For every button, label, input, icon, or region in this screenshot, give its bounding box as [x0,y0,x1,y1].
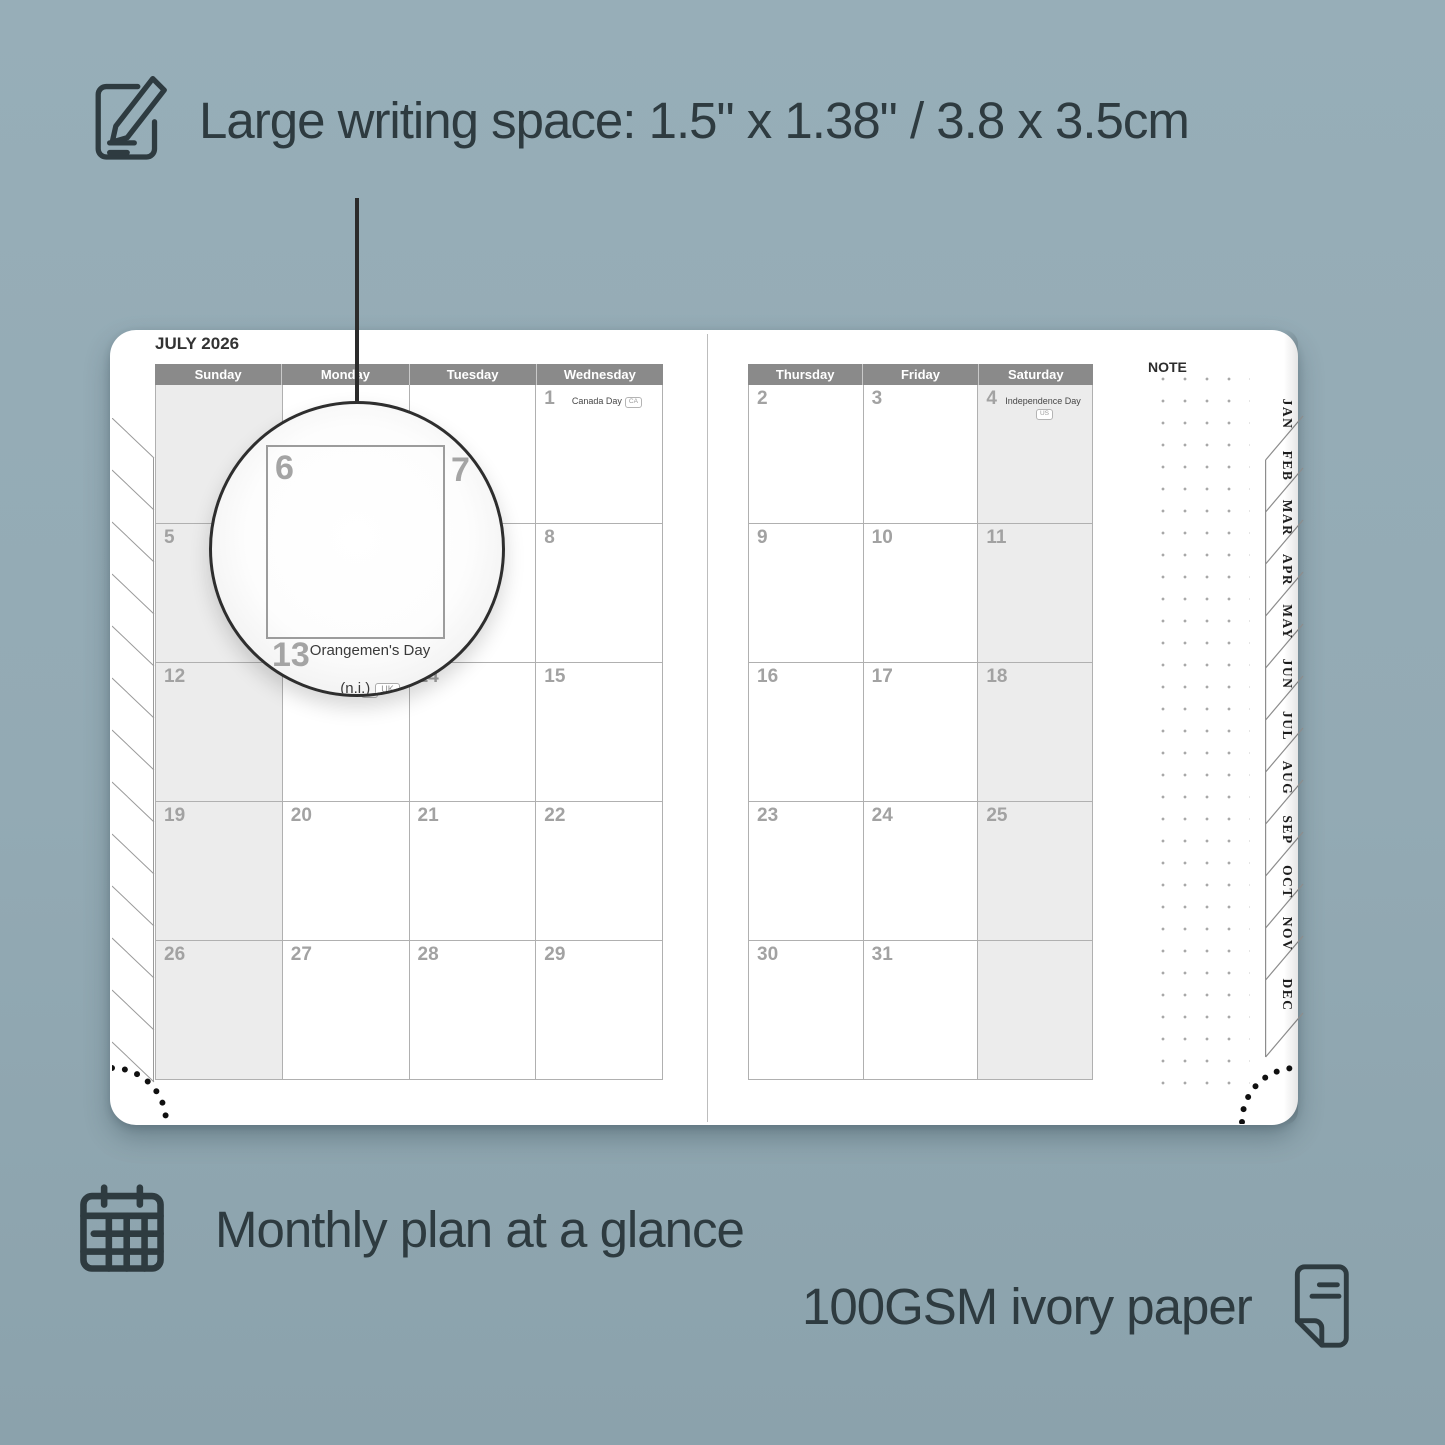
day-number: 18 [986,667,1007,688]
pencil-note-icon [85,72,173,168]
month-tab: DEC [1280,978,1295,1011]
calendar-cell: 2 [749,385,864,523]
day-header: Sunday [155,364,281,385]
week-row: 3031 [749,941,1092,1079]
calendar-cell: 21 [410,802,537,940]
week-row: 232425 [749,802,1092,941]
calendar-cell: 16 [749,663,864,801]
month-tab: JAN [1280,399,1295,430]
calendar-cell: 30 [749,941,864,1079]
calendar-cell: 31 [864,941,979,1079]
calendar-cell: 29 [536,941,662,1079]
day-number: 9 [757,528,768,549]
grid-body: 234Independence DayUS9101116171823242530… [748,385,1093,1080]
calendar-cell: 1Canada DayCA [536,385,662,523]
month-tab: SEP [1280,815,1295,844]
holiday-label: Canada DayCA [555,395,662,408]
month-tab: FEB [1280,451,1295,482]
paper-sheet-icon [1290,1262,1352,1350]
magnified-country-badge: UK [375,683,400,695]
calendar-cell: 20 [283,802,410,940]
note-dot-grid [1146,362,1250,1100]
day-number: 19 [164,806,185,827]
day-header: Wednesday [536,364,663,385]
month-tab-strip: JANFEBMARAPRMAYJUNJULAUGSEPOCTNOVDEC [1265,385,1305,1085]
calendar-cell: 10 [864,524,979,662]
magnified-day-6: 6 [275,451,294,485]
day-number: 2 [757,389,768,410]
day-number: 5 [164,528,175,549]
day-number: 25 [986,806,1007,827]
day-number: 1 [544,389,555,410]
day-number: 4 [986,389,997,410]
day-number: 3 [872,389,883,410]
month-tab: JUL [1280,711,1295,741]
product-image: Large writing space: 1.5" x 1.38" / 3.8 … [0,0,1445,1445]
calendar-cell: 27 [283,941,410,1079]
feature-monthly-plan-text: Monthly plan at a glance [215,1200,744,1259]
calendar-cell: 23 [749,802,864,940]
magnified-holiday-line2-text: (n.i.) [340,680,370,697]
calendar-cell: 3 [864,385,979,523]
page-gutter-line [707,334,708,1122]
month-tab: MAY [1280,604,1295,640]
day-header: Tuesday [409,364,536,385]
calendar-cell: 9 [749,524,864,662]
stitch-arc-right [1230,1058,1296,1124]
week-row: 234Independence DayUS [749,385,1092,524]
day-header-row: ThursdayFridaySaturday [748,364,1093,385]
day-number: 16 [757,667,778,688]
calendar-cell: 22 [536,802,662,940]
magnified-day-7: 7 [451,453,470,487]
day-number: 30 [757,945,778,966]
calendar-grid-right: ThursdayFridaySaturday234Independence Da… [748,364,1093,1080]
day-number: 8 [544,528,555,549]
month-title: JULY 2026 [155,334,239,354]
calendar-cell: 8 [536,524,662,662]
day-number: 24 [872,806,893,827]
month-tab: OCT [1280,865,1295,899]
calendar-cell: 12 [156,663,283,801]
week-row: 161718 [749,663,1092,802]
day-number: 10 [872,528,893,549]
feature-paper: 100GSM ivory paper [802,1262,1352,1350]
calendar-cell: 15 [536,663,662,801]
calendar-cell: 4Independence DayUS [978,385,1092,523]
magnifier-pointer-line [355,198,359,404]
feature-paper-text: 100GSM ivory paper [802,1277,1252,1336]
calendar-grid-icon [75,1182,169,1276]
day-header: Thursday [748,364,862,385]
country-badge: US [1036,409,1053,420]
day-number: 21 [418,806,439,827]
day-number: 27 [291,945,312,966]
month-tab: NOV [1280,917,1295,952]
week-row: 19202122 [156,802,662,941]
month-tab: MAR [1280,500,1295,537]
calendar-cell: 18 [978,663,1092,801]
calendar-cell [978,941,1092,1079]
day-number: 22 [544,806,565,827]
magnifier-circle: 6 7 13 Orangemen's Day (n.i.)UK [209,401,505,697]
day-number: 28 [418,945,439,966]
day-header: Saturday [978,364,1093,385]
calendar-cell: 17 [864,663,979,801]
calendar-cell: 24 [864,802,979,940]
day-header: Monday [281,364,408,385]
left-tab-stubs [112,418,155,1108]
country-badge: CA [625,397,642,408]
month-tab: APR [1280,554,1295,586]
day-number: 23 [757,806,778,827]
stitch-arc-left [112,1058,178,1124]
week-row: 26272829 [156,941,662,1079]
feature-writing-space-text: Large writing space: 1.5" x 1.38" / 3.8 … [199,91,1189,150]
calendar-cell: 19 [156,802,283,940]
week-row: 91011 [749,524,1092,663]
day-number: 20 [291,806,312,827]
day-number: 15 [544,667,565,688]
magnified-holiday-line1: Orangemen's Day [270,642,470,659]
day-number: 29 [544,945,565,966]
day-number: 12 [164,667,185,688]
day-header: Friday [862,364,977,385]
holiday-label: Independence DayUS [997,395,1092,420]
day-header-row: SundayMondayTuesdayWednesday [155,364,663,385]
note-label: NOTE [1148,357,1193,377]
feature-monthly-plan: Monthly plan at a glance [75,1182,744,1276]
day-number: 26 [164,945,185,966]
day-number: 31 [872,945,893,966]
calendar-cell: 28 [410,941,537,1079]
feature-writing-space: Large writing space: 1.5" x 1.38" / 3.8 … [85,72,1189,168]
calendar-cell: 11 [978,524,1092,662]
calendar-cell: 25 [978,802,1092,940]
day-number: 17 [872,667,893,688]
month-tab: JUN [1280,659,1295,690]
month-tab: AUG [1280,761,1295,796]
day-number: 11 [986,528,1006,549]
